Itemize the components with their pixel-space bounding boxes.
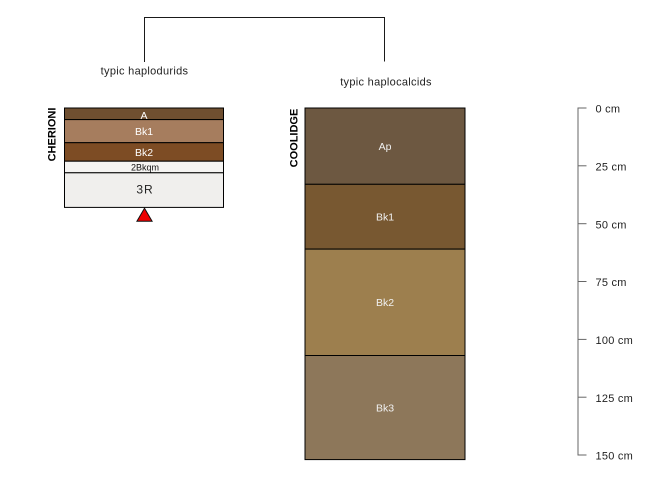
svg-text:3R: 3R [136,182,153,196]
svg-text:COOLIDGE: COOLIDGE [289,109,301,168]
svg-text:125 cm: 125 cm [596,393,634,405]
svg-text:50 cm: 50 cm [596,219,627,231]
svg-text:Bk1: Bk1 [135,126,153,138]
svg-text:Bk2: Bk2 [135,147,153,159]
svg-text:75 cm: 75 cm [596,277,627,289]
svg-text:Bk1: Bk1 [376,212,394,224]
svg-text:typic haplodurids: typic haplodurids [101,66,189,78]
svg-text:Ap: Ap [379,141,392,153]
svg-text:25 cm: 25 cm [596,162,627,174]
svg-text:2Bkqm: 2Bkqm [131,162,159,172]
svg-text:Bk2: Bk2 [376,297,394,309]
svg-text:150 cm: 150 cm [596,451,634,463]
svg-text:Bk3: Bk3 [376,403,394,415]
svg-text:typic haplocalcids: typic haplocalcids [340,77,432,89]
svg-text:100 cm: 100 cm [596,335,634,347]
svg-text:0 cm: 0 cm [596,104,621,116]
svg-text:CHERIONI: CHERIONI [47,108,59,162]
